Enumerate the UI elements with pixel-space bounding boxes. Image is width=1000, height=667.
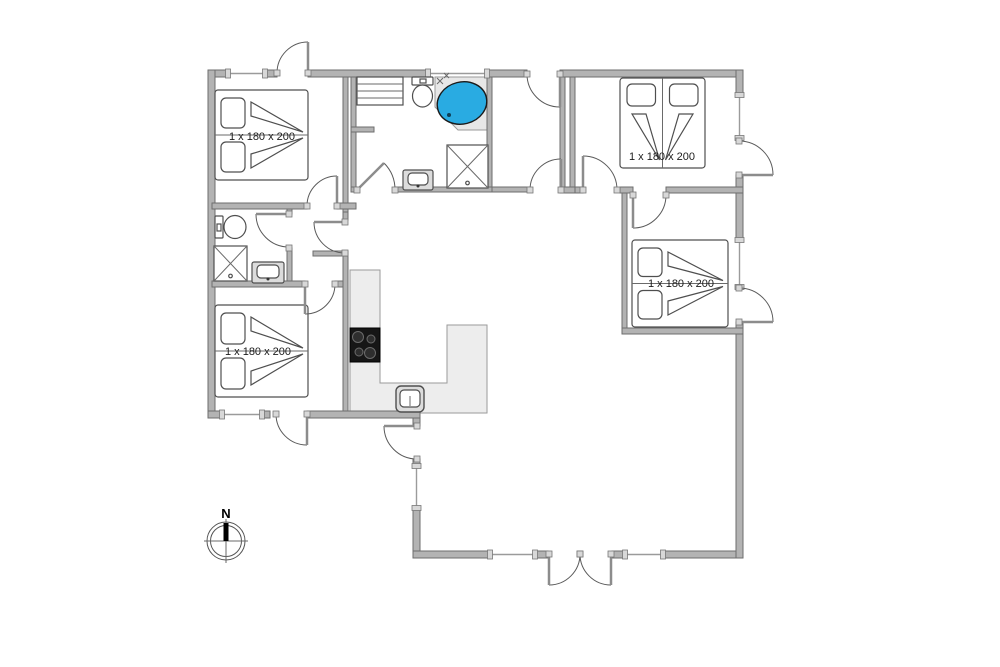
door-bedroom-tr-swing-arc <box>583 156 617 190</box>
toilet-small-bathroom-bowl <box>224 216 246 239</box>
bedroom-mr-south-wall <box>622 328 743 334</box>
door-terrace-right-swing-arc <box>580 554 611 585</box>
door-bedroom-mr-jamb <box>630 192 636 198</box>
window-bottom-living-2-cap <box>623 550 628 559</box>
door-bathroom-small-jamb <box>286 211 292 217</box>
window-top-bathroom-cap <box>485 69 490 78</box>
door-terrace-left-jamb <box>546 551 552 557</box>
sink-main-bathroom-tap <box>417 185 420 188</box>
window-bottom-bedroom-bl-cap <box>220 410 225 419</box>
window-bottom-living-1-cap <box>533 550 538 559</box>
bedroom-tl-east-wall <box>343 77 348 212</box>
sink-small-bathroom-tap <box>267 278 270 281</box>
door-exterior-bedroom-tl-swing-arc <box>277 42 308 73</box>
bed-bedroom-tr-pillow <box>627 84 656 106</box>
bed-bedroom-tr-pillow <box>670 84 699 106</box>
door-hall-living-jamb <box>342 250 348 256</box>
door-entrance-top-jamb <box>524 71 530 77</box>
exterior-right-2 <box>736 175 743 240</box>
window-bottom-living-1-cap <box>488 550 493 559</box>
window-west-living-cap <box>412 506 421 511</box>
door-terrace-right-jamb <box>577 551 583 557</box>
door-exterior-bedroom-bl-swing-arc <box>276 414 307 445</box>
bed-bedroom-mr-pillow <box>638 248 662 277</box>
bed-size-label-bedroom-bl: 1 x 180 x 200 <box>225 346 291 358</box>
door-entry-hall-south-swing-arc <box>530 159 561 190</box>
compass-north-label: N <box>221 506 230 521</box>
door-terrace-left-swing-arc <box>549 554 580 585</box>
toilet-main-bathroom-flush <box>420 79 426 83</box>
door-bathroom-main-jamb <box>392 187 398 193</box>
door-entrance-top-swing-arc <box>527 74 560 107</box>
window-west-living-cap <box>412 464 421 469</box>
door-entry-hall-south-jamb <box>527 187 533 193</box>
door-bedroom-mr-jamb <box>663 192 669 198</box>
bedroom-tr-south-wall-3 <box>666 187 743 193</box>
toilet-main-bathroom-bowl <box>413 85 433 107</box>
door-bathroom-main-jamb <box>354 187 360 193</box>
stove-burner <box>353 332 364 343</box>
bed-size-label-bedroom-tr: 1 x 180 x 200 <box>629 151 695 163</box>
floor-plan: 1 x 180 x 200 1 x 180 x 200 1 x 180 x 20… <box>0 0 1000 667</box>
door-exterior-bedroom-tr-jamb <box>736 172 742 178</box>
window-top-bedroom-tl-cap <box>263 69 268 78</box>
hall-east-wall-2 <box>343 253 348 411</box>
door-bedroom-tl-jamb <box>304 203 310 209</box>
door-bedroom-tl-swing-arc <box>307 176 337 206</box>
bedroom-mr-west-wall <box>622 193 627 328</box>
exterior-top-5 <box>560 70 743 77</box>
bed-bedroom-tl-pillow <box>221 98 245 128</box>
door-terrace-right-jamb <box>608 551 614 557</box>
door-bedroom-tr-jamb <box>580 187 586 193</box>
door-exterior-living-west-swing-arc <box>384 426 417 459</box>
door-exterior-bedroom-bl-jamb <box>273 411 279 417</box>
sink-main-bathroom-basin <box>408 173 428 185</box>
door-exterior-bedroom-mr-jamb <box>736 285 742 291</box>
bed-bedroom-mr-pillow <box>638 291 662 320</box>
door-entrance-top-jamb <box>557 71 563 77</box>
door-exterior-bedroom-mr-jamb <box>736 319 742 325</box>
window-bottom-bedroom-bl-cap <box>260 410 265 419</box>
floor-plan-page: 1 x 180 x 200 1 x 180 x 200 1 x 180 x 20… <box>0 0 1000 667</box>
door-exterior-bedroom-tl-jamb <box>274 70 280 76</box>
spa-drain <box>447 113 451 117</box>
door-hall-living-swing-arc <box>314 222 345 253</box>
exterior-top-4 <box>487 70 527 77</box>
door-bathroom-main-leaf <box>357 163 384 190</box>
door-exterior-bedroom-tr-jamb <box>736 138 742 144</box>
door-bathroom-small-jamb <box>286 245 292 251</box>
door-entry-hall-south-jamb <box>558 187 564 193</box>
door-bedroom-bl-swing-arc <box>305 284 335 314</box>
stove-burner <box>367 335 375 343</box>
stove-burner <box>355 348 363 356</box>
door-exterior-bedroom-tr-swing-arc <box>739 141 773 175</box>
bed-size-label-bedroom-tl: 1 x 180 x 200 <box>229 131 295 143</box>
exterior-top-3 <box>308 70 428 77</box>
entry-hall-south-wall <box>492 187 530 192</box>
bedroom-tr-west-wall <box>570 77 575 187</box>
exterior-left <box>208 70 215 418</box>
bed-size-label-bedroom-mr: 1 x 180 x 200 <box>648 278 714 290</box>
sink-small-bathroom-basin <box>257 265 279 278</box>
plan-geometry <box>204 42 773 585</box>
bed-bedroom-tl-pillow <box>221 142 245 172</box>
shower-main-bathroom-drain <box>466 181 470 185</box>
window-top-bedroom-tl-cap <box>226 69 231 78</box>
bed-bedroom-bl-pillow <box>221 313 245 344</box>
door-exterior-bedroom-tl-jamb <box>305 70 311 76</box>
door-bedroom-tr-jamb <box>614 187 620 193</box>
door-bedroom-tl-jamb <box>334 203 340 209</box>
toilet-small-bathroom-flush <box>217 224 221 231</box>
door-bathroom-small-swing-arc <box>256 214 289 247</box>
door-exterior-living-west-jamb <box>414 423 420 429</box>
bathroom-main-stub <box>351 127 374 132</box>
window-right-bedroom-mr-cap <box>735 238 744 243</box>
door-exterior-bedroom-bl-jamb <box>304 411 310 417</box>
bed-bedroom-bl-pillow <box>221 358 245 389</box>
bedroom-tl-south-wall-1 <box>212 203 307 209</box>
exterior-right-1 <box>736 70 743 95</box>
exterior-bottom-1 <box>413 551 490 558</box>
window-right-bedroom-tr-cap <box>735 93 744 98</box>
door-bathroom-main-swing-arc <box>384 163 395 190</box>
door-bedroom-bl-jamb <box>332 281 338 287</box>
door-exterior-living-west-jamb <box>414 456 420 462</box>
door-exterior-bedroom-mr-swing-arc <box>739 288 773 322</box>
bathroom-small-east-wall-2 <box>287 248 292 281</box>
stove-burner <box>365 348 376 359</box>
door-bedroom-mr-swing-arc <box>633 195 666 228</box>
exterior-bottom-4 <box>663 551 743 558</box>
window-bottom-living-2-cap <box>661 550 666 559</box>
compass-needle <box>224 523 229 541</box>
shower-small-bathroom-drain <box>229 274 233 278</box>
exterior-right-3 <box>736 322 743 558</box>
door-bedroom-bl-jamb <box>302 281 308 287</box>
door-hall-living-jamb <box>342 219 348 225</box>
